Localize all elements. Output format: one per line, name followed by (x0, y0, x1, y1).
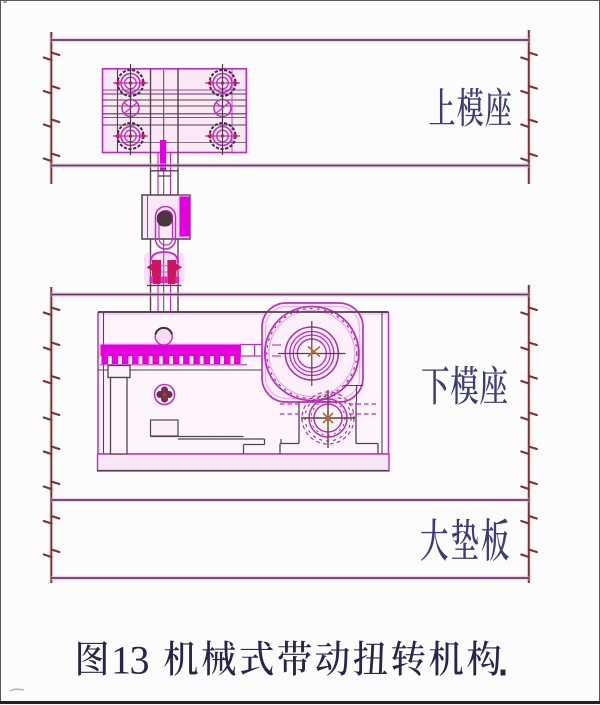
svg-text:13: 13 (111, 638, 149, 683)
